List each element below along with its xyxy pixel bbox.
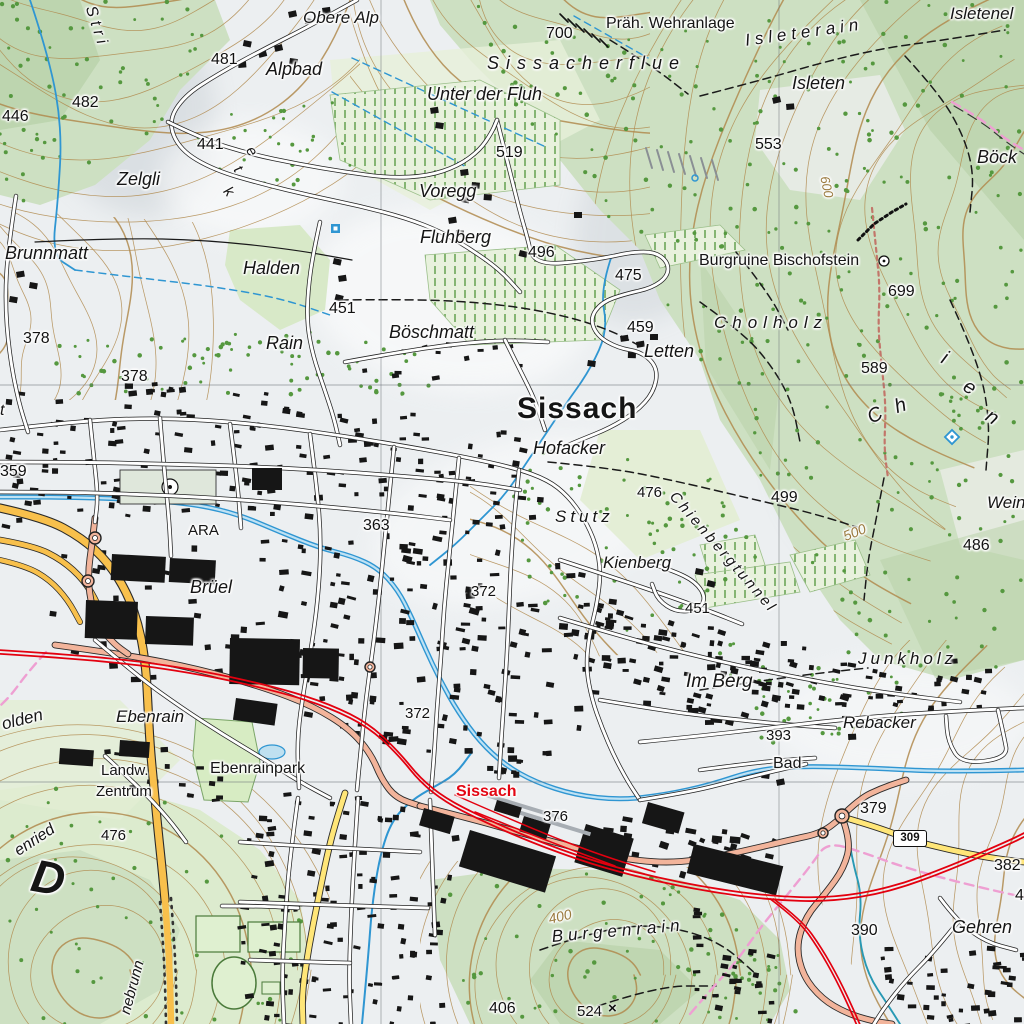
map-canvas[interactable]: Obere Alp481Alpbad482446441ZelgliStrietk… bbox=[0, 0, 1024, 1024]
map-graphics bbox=[0, 0, 1024, 1024]
